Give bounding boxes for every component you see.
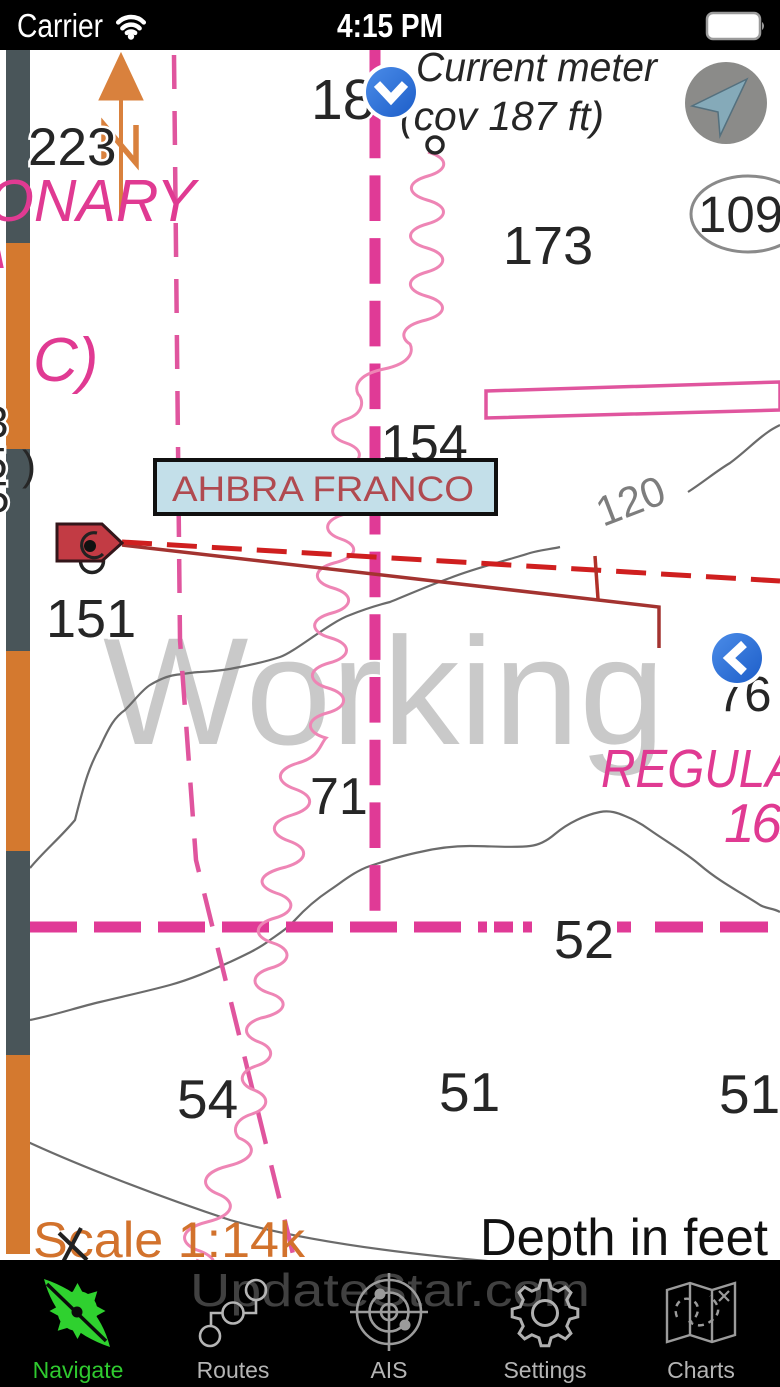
svg-text:REGULA: REGULA bbox=[601, 739, 780, 799]
svg-text:4:15 PM: 4:15 PM bbox=[337, 7, 443, 44]
svg-text:173: 173 bbox=[503, 216, 593, 276]
svg-text:5: 5 bbox=[0, 473, 9, 522]
svg-text:): ) bbox=[22, 442, 36, 489]
svg-text:ONARY: ONARY bbox=[0, 168, 199, 234]
svg-text:Routes: Routes bbox=[197, 1357, 270, 1383]
svg-text:C): C) bbox=[33, 326, 98, 395]
svg-text:AHBRA FRANCO: AHBRA FRANCO bbox=[172, 470, 474, 509]
svg-text:54: 54 bbox=[177, 1068, 238, 1130]
svg-text:Depth in feet: Depth in feet bbox=[480, 1209, 769, 1267]
svg-text:163: 163 bbox=[724, 792, 780, 854]
svg-text:109: 109 bbox=[698, 186, 780, 243]
svg-text:A: A bbox=[0, 218, 7, 280]
svg-text:51: 51 bbox=[719, 1063, 780, 1125]
svg-text:51: 51 bbox=[439, 1061, 500, 1123]
svg-text:Charts: Charts bbox=[667, 1357, 735, 1383]
svg-text:52: 52 bbox=[554, 910, 614, 970]
svg-text:Carrier: Carrier bbox=[17, 7, 103, 44]
svg-text:151: 151 bbox=[46, 589, 136, 649]
svg-text:(cov 187 ft): (cov 187 ft) bbox=[400, 93, 604, 139]
svg-text:Navigate: Navigate bbox=[33, 1357, 124, 1383]
svg-text:Current meter: Current meter bbox=[416, 44, 659, 90]
svg-text:71: 71 bbox=[310, 768, 368, 826]
svg-text:AIS: AIS bbox=[370, 1357, 407, 1383]
svg-text:Settings: Settings bbox=[503, 1357, 586, 1383]
